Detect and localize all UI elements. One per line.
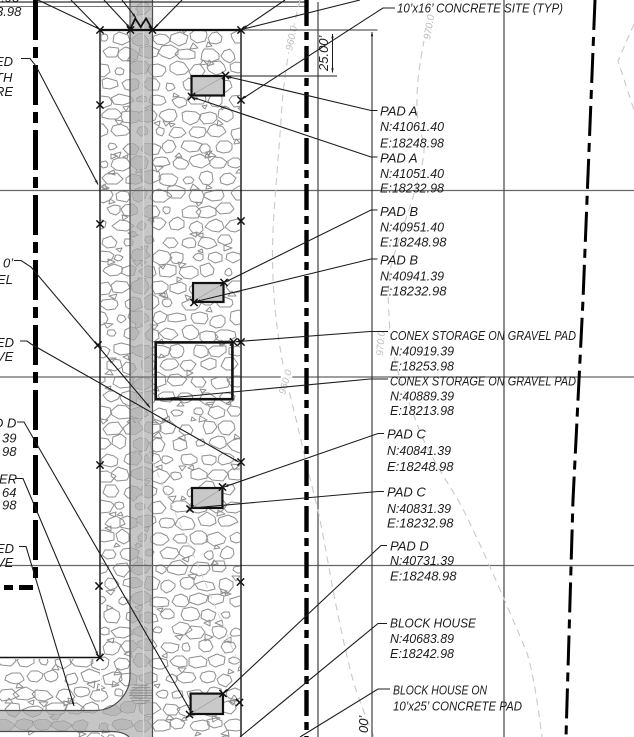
svg-text:10’x16’ CONCRETE SITE (TYP): 10’x16’ CONCRETE SITE (TYP) bbox=[397, 1, 563, 16]
svg-text:98: 98 bbox=[2, 498, 17, 513]
svg-text:N:40941.39: N:40941.39 bbox=[380, 269, 444, 284]
svg-text:E:18248.98: E:18248.98 bbox=[390, 569, 457, 584]
svg-text:0’: 0’ bbox=[3, 256, 14, 271]
svg-text:3.98: 3.98 bbox=[0, 4, 22, 19]
svg-text:960.0: 960.0 bbox=[277, 368, 295, 396]
svg-text:N:41051.40: N:41051.40 bbox=[380, 166, 445, 181]
svg-text:PAD B: PAD B bbox=[380, 253, 418, 268]
svg-text:E:18248.98: E:18248.98 bbox=[387, 459, 454, 474]
svg-text:E:18242.98: E:18242.98 bbox=[390, 646, 455, 661]
svg-text:E:18232.98: E:18232.98 bbox=[380, 284, 447, 299]
svg-text:E:18232.98: E:18232.98 bbox=[380, 181, 445, 196]
svg-text:E:18253.98: E:18253.98 bbox=[390, 359, 455, 374]
svg-text:N:40919.39: N:40919.39 bbox=[390, 344, 454, 359]
svg-text:00’: 00’ bbox=[356, 715, 371, 733]
svg-text:98: 98 bbox=[2, 444, 17, 459]
svg-text:VE: VE bbox=[0, 555, 14, 570]
svg-text:RE: RE bbox=[0, 84, 13, 99]
svg-text:N:40731.39: N:40731.39 bbox=[390, 553, 454, 568]
svg-text:E:18232.98: E:18232.98 bbox=[387, 516, 454, 531]
svg-text:BLOCK HOUSE ON: BLOCK HOUSE ON bbox=[393, 683, 487, 698]
svg-text:PAD B: PAD B bbox=[380, 204, 418, 219]
svg-text:N:40951.40: N:40951.40 bbox=[380, 220, 445, 235]
svg-text:CONEX STORAGE ON GRAVEL PAD: CONEX STORAGE ON GRAVEL PAD bbox=[390, 374, 576, 389]
svg-text:10’x25’ CONCRETE PAD: 10’x25’ CONCRETE PAD bbox=[393, 699, 522, 714]
svg-text:PAD A: PAD A bbox=[380, 104, 418, 119]
svg-text:N:40831.39: N:40831.39 bbox=[387, 501, 451, 516]
svg-text:970.0: 970.0 bbox=[375, 330, 388, 356]
svg-text:25.00’: 25.00’ bbox=[316, 34, 331, 72]
svg-text:PAD A: PAD A bbox=[380, 151, 418, 166]
svg-text:E:18213.98: E:18213.98 bbox=[390, 403, 455, 418]
svg-text:970.0: 970.0 bbox=[422, 14, 437, 41]
svg-text:CONEX STORAGE ON GRAVEL PAD: CONEX STORAGE ON GRAVEL PAD bbox=[390, 328, 576, 343]
svg-text:E:18248.98: E:18248.98 bbox=[380, 136, 445, 151]
svg-text:BLOCK HOUSE: BLOCK HOUSE bbox=[390, 616, 476, 631]
svg-text:PAD C: PAD C bbox=[387, 427, 426, 442]
svg-text:VE: VE bbox=[0, 349, 14, 364]
svg-text:ED: ED bbox=[0, 335, 14, 350]
svg-text:ED: ED bbox=[0, 541, 14, 556]
svg-text:N:40683.89: N:40683.89 bbox=[390, 631, 454, 646]
svg-text:TH: TH bbox=[0, 70, 13, 85]
svg-text:N:41061.40: N:41061.40 bbox=[380, 119, 445, 134]
svg-text:960.0: 960.0 bbox=[284, 24, 300, 51]
svg-text:N:40841.39: N:40841.39 bbox=[387, 443, 451, 458]
svg-text:D D: D D bbox=[0, 416, 16, 431]
svg-text:N:40889.39: N:40889.39 bbox=[390, 389, 454, 404]
svg-text:PAD C: PAD C bbox=[387, 485, 426, 500]
svg-text:EL: EL bbox=[0, 272, 13, 287]
svg-text:PAD D: PAD D bbox=[390, 539, 429, 554]
svg-text:ED: ED bbox=[0, 54, 13, 69]
svg-text:E:18248.98: E:18248.98 bbox=[380, 235, 447, 250]
